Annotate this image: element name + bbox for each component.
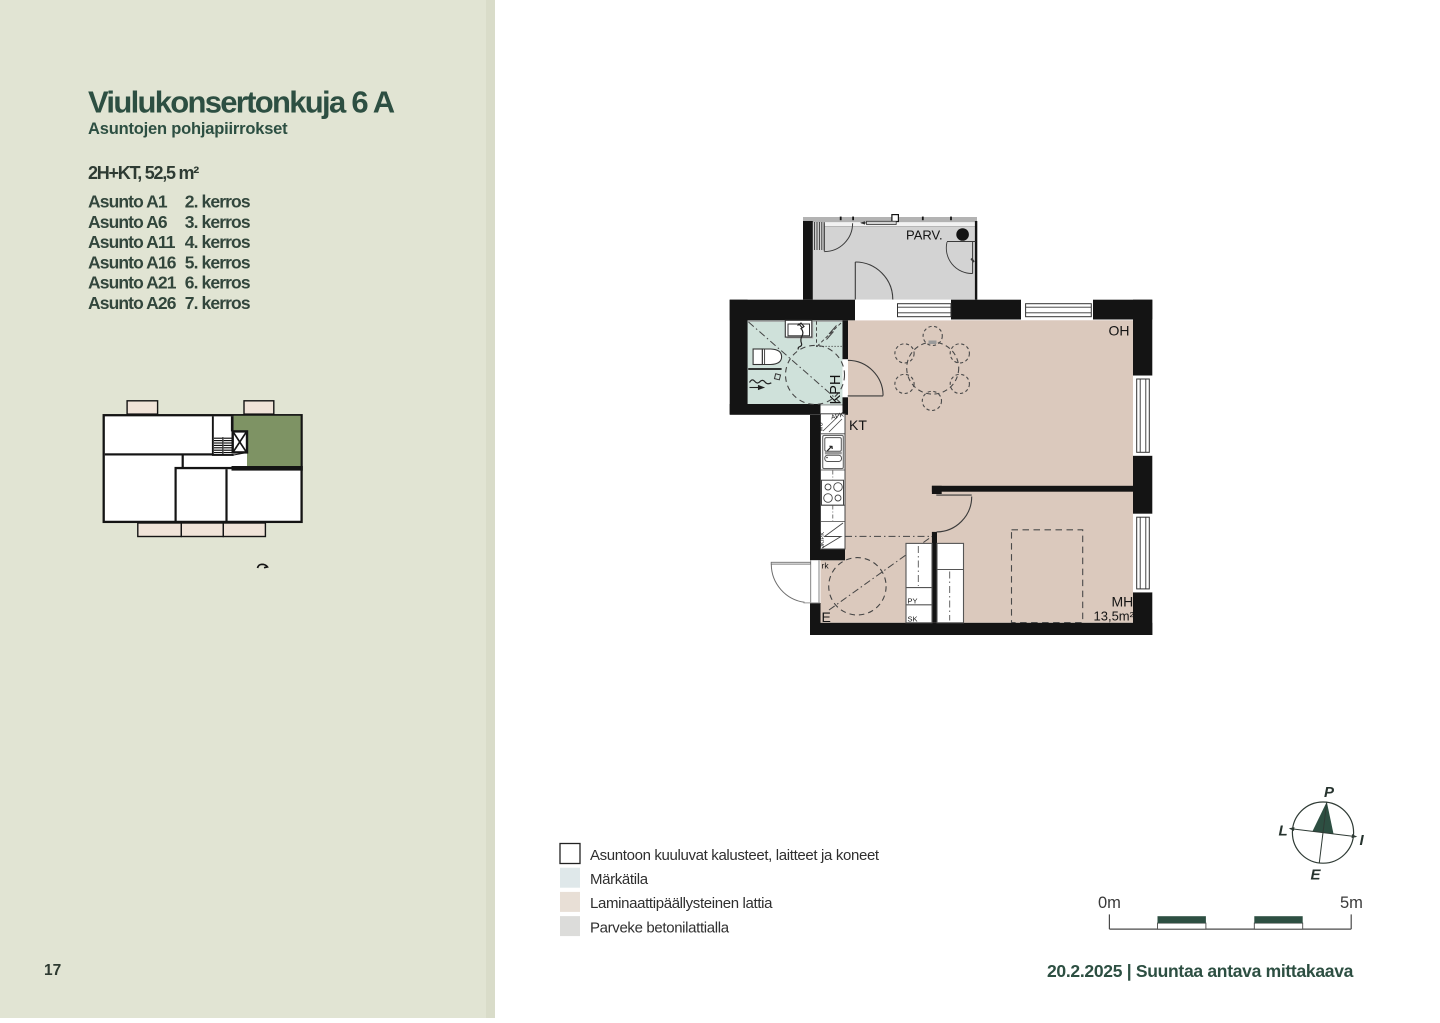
svg-text:4. kerros: 4. kerros	[185, 232, 251, 252]
svg-text:Asunto A26: Asunto A26	[88, 293, 177, 313]
svg-text:13,5m²: 13,5m²	[1094, 609, 1135, 624]
svg-text:Parveke betonilattialla: Parveke betonilattialla	[590, 919, 730, 936]
svg-text:Asuntoon kuuluvat kalusteet, l: Asuntoon kuuluvat kalusteet, laitteet ja…	[590, 847, 880, 864]
svg-text:E: E	[822, 609, 831, 625]
svg-text:5m: 5m	[1340, 894, 1363, 912]
svg-text:Asunto A16: Asunto A16	[88, 252, 177, 272]
svg-text:PY: PY	[908, 597, 918, 606]
svg-text:MU: MU	[818, 422, 824, 431]
svg-text:3. kerros: 3. kerros	[185, 212, 251, 232]
svg-text:OH: OH	[1109, 322, 1130, 338]
svg-text:rk: rk	[822, 561, 830, 571]
svg-text:17: 17	[44, 962, 61, 979]
svg-text:L: L	[1279, 823, 1288, 840]
svg-text:PARV.: PARV.	[906, 228, 943, 243]
svg-text:Märkätila: Märkätila	[590, 871, 649, 888]
svg-text:JK/PK: JK/PK	[820, 532, 826, 548]
svg-text:Viulukonsertonkuja 6 A: Viulukonsertonkuja 6 A	[88, 85, 395, 120]
svg-text:6. kerros: 6. kerros	[185, 273, 251, 293]
svg-text:P: P	[1324, 784, 1335, 801]
svg-text:2. kerros: 2. kerros	[185, 192, 251, 212]
svg-text:Asunto A11: Asunto A11	[88, 232, 176, 252]
svg-text:2H+KT, 52,5 m²: 2H+KT, 52,5 m²	[88, 163, 199, 183]
svg-text:7. kerros: 7. kerros	[185, 293, 251, 313]
svg-text:5. kerros: 5. kerros	[185, 252, 251, 272]
svg-text:E: E	[1311, 867, 1322, 884]
svg-text:0m: 0m	[1098, 894, 1121, 912]
svg-text:KT: KT	[849, 417, 867, 433]
svg-text:KPH: KPH	[828, 375, 844, 405]
svg-text:Asunto A6: Asunto A6	[88, 212, 168, 232]
svg-text:I: I	[1360, 832, 1365, 849]
svg-text:MH: MH	[1112, 594, 1134, 610]
svg-text:Asunto A21: Asunto A21	[88, 273, 177, 293]
svg-text:Asuntojen pohjapiirrokset: Asuntojen pohjapiirrokset	[88, 120, 288, 138]
svg-text:SK: SK	[908, 614, 918, 623]
svg-text:Asunto A1: Asunto A1	[88, 192, 168, 212]
svg-text:20.2.2025 | Suuntaa antava mi: 20.2.2025 | Suuntaa antava mittakaava	[1047, 961, 1354, 981]
svg-text:Laminaattipäällysteinen lattia: Laminaattipäällysteinen lattia	[590, 895, 773, 912]
